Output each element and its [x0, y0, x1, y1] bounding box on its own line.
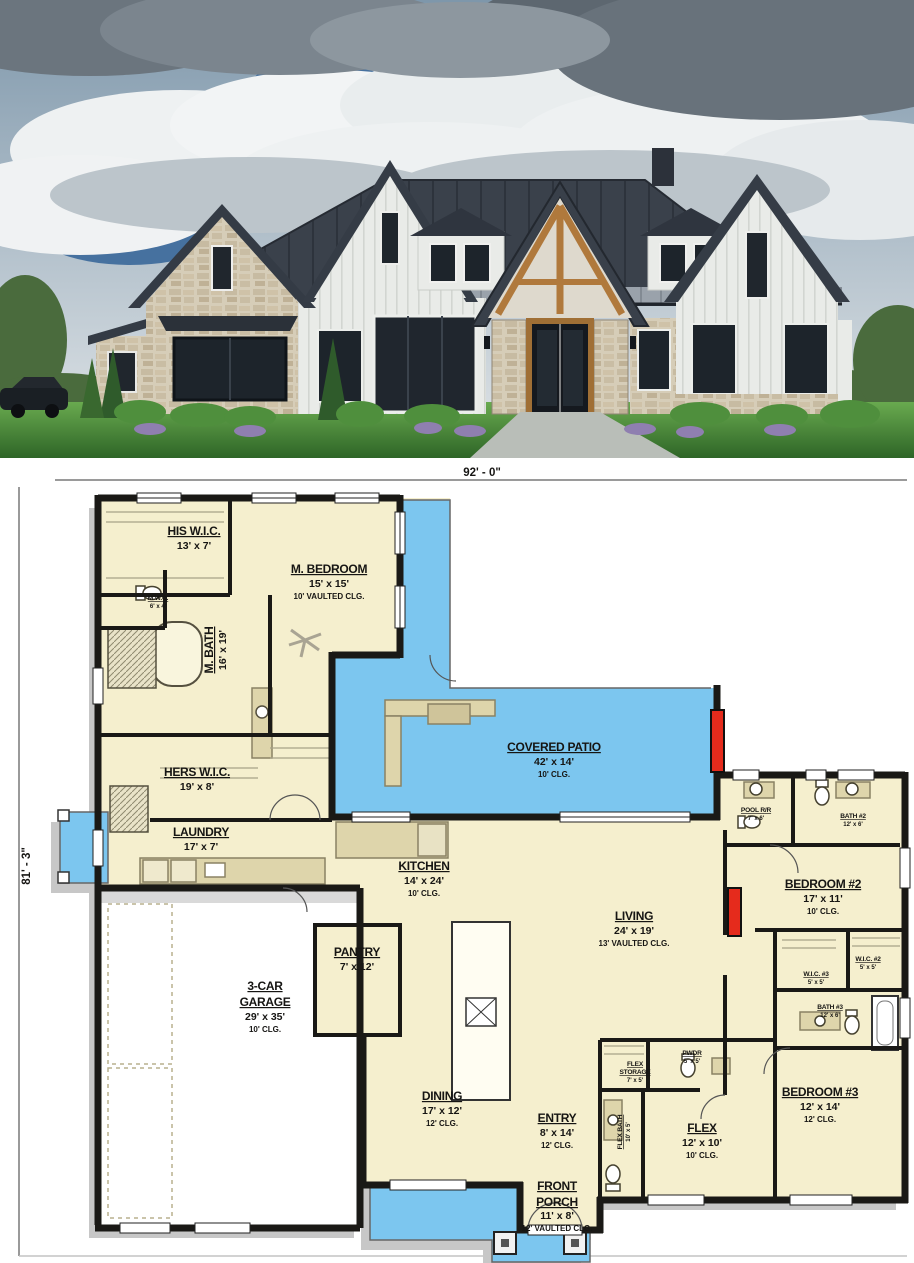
plan-text: STORAGE — [619, 1069, 651, 1076]
plan-text: 92' - 0" — [463, 467, 501, 479]
window — [638, 330, 670, 390]
plan-text: BEDROOM #3 — [782, 1085, 859, 1099]
room-label-flex: FLEX12' x 10'10' CLG. — [682, 1121, 722, 1160]
room-label-dining: DINING17' x 12'12' CLG. — [422, 1089, 462, 1128]
attic-window — [212, 246, 232, 290]
plan-text: M. BATH — [202, 626, 216, 673]
floor-plan: HIS W.I.C.13' x 7'M. BEDROOM15' x 15'10'… — [19, 467, 910, 1263]
plan-text: 5' x 5' — [808, 980, 825, 986]
garage-shadow-band — [101, 891, 357, 903]
plan-text: BATH #2 — [840, 813, 866, 820]
sconce — [630, 336, 636, 349]
fireplace-2 — [728, 888, 741, 936]
plan-text: 10' CLG. — [538, 770, 570, 779]
plan-text: FLEX — [687, 1121, 717, 1135]
plan-text: 10' CLG. — [807, 907, 839, 916]
stone-column — [594, 320, 628, 414]
plan-text: 12' x 6' — [843, 822, 863, 828]
window — [692, 324, 736, 394]
plan-text: 12' CLG. — [541, 1141, 573, 1150]
plan-text: 7' x 6' — [748, 816, 765, 822]
plan-text: 42' x 14' — [534, 756, 574, 768]
plan-text: POOL R/R — [741, 807, 772, 814]
plan-text: 8' x 14' — [540, 1127, 574, 1139]
plan-text: W.I.C. #2 — [855, 956, 881, 963]
plan-text: 24' x 19' — [614, 925, 654, 937]
plan-text: HERS W.I.C. — [164, 765, 230, 779]
plan-text: DINING — [422, 1089, 462, 1103]
siding-edge — [838, 320, 852, 414]
plan-text: 17' x 12' — [422, 1105, 462, 1117]
plan-text: 12' CLG. — [804, 1115, 836, 1124]
master-shower — [108, 628, 156, 688]
plan-text: LIVING — [615, 909, 653, 923]
plan-text: COVERED PATIO — [507, 740, 601, 754]
floor-plan-page: HIS W.I.C.13' x 7'M. BEDROOM15' x 15'10'… — [0, 0, 914, 1263]
plan-text: 12' x 6' — [820, 1013, 840, 1019]
dimension-width: 92' - 0" — [463, 467, 501, 479]
big-window — [374, 316, 476, 412]
plan-text: 10' CLG. — [249, 1025, 281, 1034]
plan-text: M. BEDROOM — [291, 562, 368, 576]
plan-text: PANTRY — [334, 945, 380, 959]
plan-text: 14' x 24' — [404, 875, 444, 887]
chimney — [652, 148, 674, 186]
plan-text: ENTRY — [538, 1111, 577, 1125]
plan-text: 10' CLG. — [686, 1151, 718, 1160]
window — [784, 324, 828, 394]
plan-text: 13' VAULTED CLG. — [599, 939, 670, 948]
master-tub — [152, 622, 202, 686]
plan-text: 10' x 5' — [626, 1122, 632, 1142]
plan-text: M.W.C. — [148, 595, 169, 602]
plan-text: 15' x 15' — [309, 578, 349, 590]
plan-text: 7' x 5' — [627, 1078, 644, 1084]
shower — [110, 786, 148, 832]
stone-column — [492, 320, 526, 414]
plan-text: 5' x 5' — [860, 965, 877, 971]
plan-text: 13' x 7' — [177, 540, 211, 552]
plan-text: FLEX BATH — [617, 1114, 624, 1149]
fireplace-1 — [711, 710, 724, 772]
plan-text: 81' - 3" — [21, 847, 33, 885]
plan-text: GARAGE — [240, 995, 291, 1009]
plan-text: 12' CLG. — [426, 1119, 458, 1128]
plan-text: FLEX — [627, 1061, 644, 1068]
tub — [872, 996, 898, 1050]
plan-text: 7' x 12' — [340, 961, 374, 973]
plan-text: 11' x 8' — [540, 1210, 574, 1222]
plan-text: BATH #3 — [817, 1004, 843, 1011]
plan-text: 5' x 5' — [684, 1059, 701, 1065]
awning — [158, 316, 298, 331]
plan-text: HIS W.I.C. — [167, 524, 220, 538]
plan-text: 17' x 11' — [803, 893, 842, 905]
plan-text: 16' x 19' — [217, 630, 229, 670]
room-label-entry: ENTRY8' x 14'12' CLG. — [538, 1111, 577, 1150]
plan-text: PORCH — [536, 1195, 578, 1209]
plan-text: LAUNDRY — [173, 825, 229, 839]
plan-text: FRONT — [537, 1179, 578, 1193]
plan-text: 29' x 35' — [245, 1011, 285, 1023]
plan-text: 6' x 4' — [150, 604, 167, 610]
slit-window — [381, 212, 399, 264]
plan-text: BEDROOM #2 — [785, 877, 862, 891]
sconce — [484, 336, 490, 349]
plan-text: 12' x 14' — [800, 1101, 840, 1113]
plan-text: 3-CAR — [247, 979, 283, 993]
plan-text: 12' x 10' — [682, 1137, 722, 1149]
dimension-depth: 81' - 3" — [21, 847, 33, 885]
plan-text: 10' VAULTED CLG. — [294, 592, 365, 601]
plan-text: KITCHEN — [398, 859, 449, 873]
plan-text: PWDR — [682, 1050, 702, 1057]
room-label-m-bath: M. BATH16' x 19' — [202, 626, 229, 673]
slit-window — [746, 232, 768, 298]
plan-text: 10' CLG. — [408, 889, 440, 898]
plan-text: 12' VAULTED CLG. — [522, 1224, 593, 1233]
plan-text: 19' x 8' — [180, 781, 214, 793]
plan-text: W.I.C. #3 — [803, 971, 829, 978]
plan-text: 17' x 7' — [184, 841, 218, 853]
house-photo — [0, 0, 914, 458]
